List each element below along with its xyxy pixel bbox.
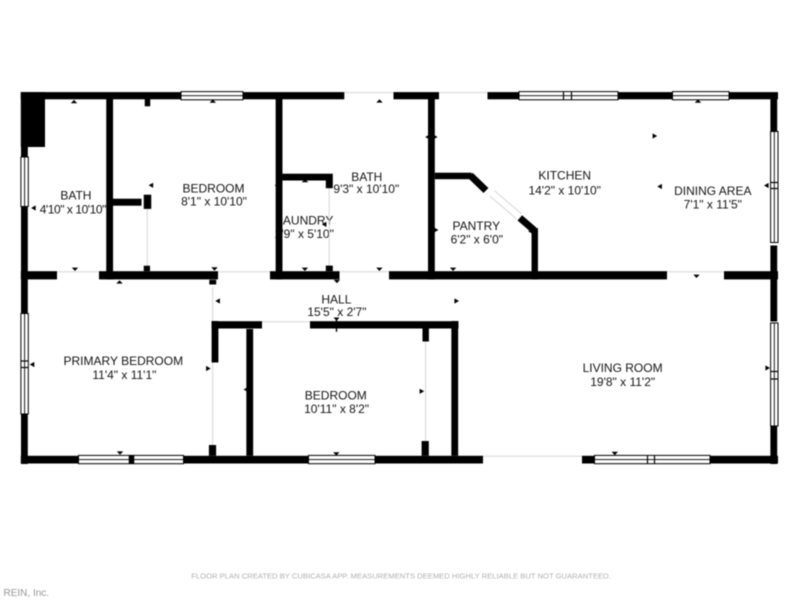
svg-text:PANTRY: PANTRY bbox=[453, 219, 501, 233]
svg-text:2'9" x 5'10": 2'9" x 5'10" bbox=[275, 227, 334, 241]
svg-text:LIVING ROOM: LIVING ROOM bbox=[583, 361, 663, 375]
svg-text:6'2" x 6'0": 6'2" x 6'0" bbox=[451, 232, 503, 246]
svg-text:BEDROOM: BEDROOM bbox=[182, 181, 244, 195]
svg-text:REIN, Inc.: REIN, Inc. bbox=[4, 588, 50, 599]
svg-text:BATH: BATH bbox=[60, 188, 91, 202]
svg-text:PRIMARY BEDROOM: PRIMARY BEDROOM bbox=[64, 354, 184, 368]
svg-text:7'1" x 11'5": 7'1" x 11'5" bbox=[684, 198, 742, 212]
svg-text:BEDROOM: BEDROOM bbox=[305, 389, 367, 403]
svg-text:FLOOR PLAN CREATED BY CUBICASA: FLOOR PLAN CREATED BY CUBICASA APP. MEAS… bbox=[191, 571, 610, 580]
svg-text:8'1" x 10'10": 8'1" x 10'10" bbox=[181, 195, 247, 209]
svg-text:11'4" x 11'1": 11'4" x 11'1" bbox=[92, 368, 156, 382]
svg-text:KITCHEN: KITCHEN bbox=[538, 169, 591, 183]
svg-text:14'2" x 10'10": 14'2" x 10'10" bbox=[528, 184, 601, 198]
svg-text:15'5" x 2'7": 15'5" x 2'7" bbox=[307, 305, 366, 319]
svg-text:4'10" x 10'10": 4'10" x 10'10" bbox=[40, 202, 106, 216]
svg-text:10'11" x 8'2": 10'11" x 8'2" bbox=[304, 402, 369, 416]
svg-text:19'8" x 11'2": 19'8" x 11'2" bbox=[590, 375, 655, 389]
svg-text:9'3" x 10'10": 9'3" x 10'10" bbox=[333, 182, 399, 196]
svg-text:DINING AREA: DINING AREA bbox=[674, 184, 751, 198]
